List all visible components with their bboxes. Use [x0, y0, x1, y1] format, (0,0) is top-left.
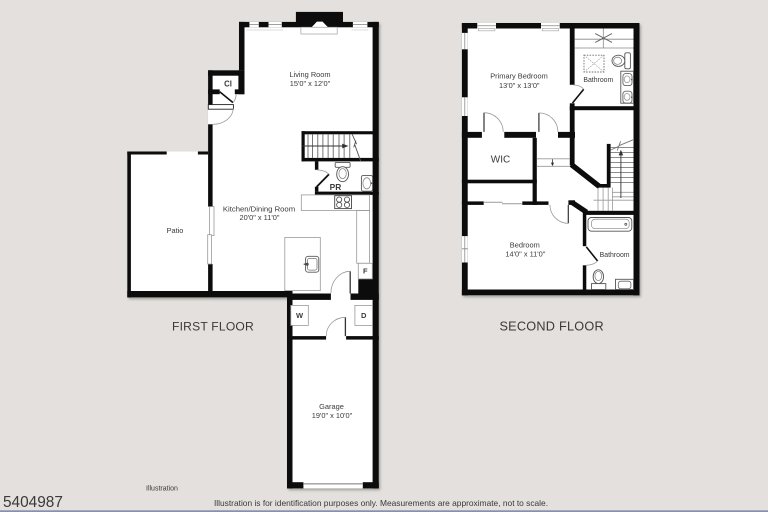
svg-text:20'0" x 11'0": 20'0" x 11'0"	[240, 213, 280, 222]
svg-text:Bathroom: Bathroom	[583, 77, 613, 84]
svg-text:Patio: Patio	[167, 226, 184, 235]
svg-text:19'0" x 10'0": 19'0" x 10'0"	[312, 411, 353, 420]
svg-text:Primary Bedroom: Primary Bedroom	[490, 71, 548, 80]
svg-text:W: W	[296, 311, 304, 320]
svg-text:PR: PR	[330, 182, 342, 192]
svg-text:F: F	[363, 267, 368, 276]
svg-text:Cl: Cl	[224, 79, 232, 88]
svg-text:Bathroom: Bathroom	[600, 252, 630, 259]
svg-text:Bedroom: Bedroom	[510, 241, 540, 250]
svg-text:13'0" x 13'0": 13'0" x 13'0"	[499, 81, 540, 90]
svg-text:Illustration is for identifica: Illustration is for identification purpo…	[214, 498, 548, 508]
svg-text:SECOND FLOOR: SECOND FLOOR	[499, 320, 604, 334]
svg-text:FIRST FLOOR: FIRST FLOOR	[172, 320, 254, 334]
svg-text:Living Room: Living Room	[289, 70, 330, 79]
svg-text:Garage: Garage	[319, 402, 344, 411]
svg-text:Kitchen/Dining Room: Kitchen/Dining Room	[223, 204, 295, 213]
svg-text:D: D	[361, 311, 367, 320]
svg-text:15'0" x 12'0": 15'0" x 12'0"	[290, 79, 331, 88]
svg-text:5404987: 5404987	[3, 494, 63, 511]
svg-text:WIC: WIC	[491, 155, 510, 166]
svg-text:14'0" x 11'0": 14'0" x 11'0"	[505, 250, 545, 259]
svg-text:Illustration: Illustration	[146, 486, 178, 493]
